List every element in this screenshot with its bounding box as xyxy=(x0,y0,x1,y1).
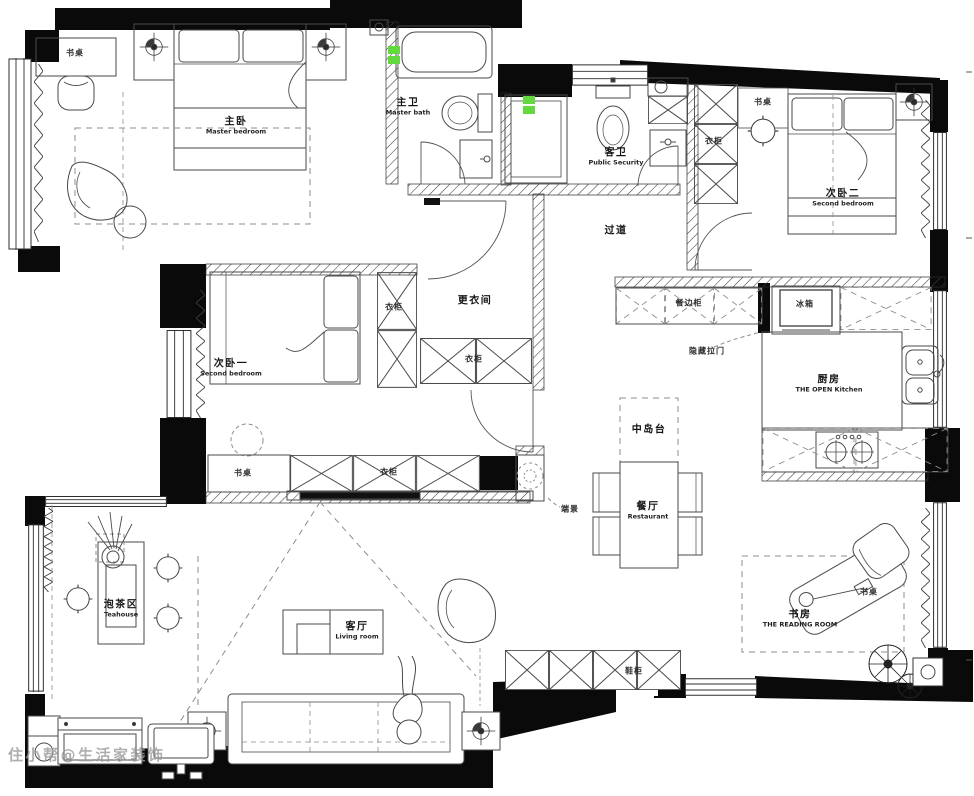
tea-table xyxy=(98,542,144,644)
plant xyxy=(88,512,132,568)
kitchen-sink xyxy=(902,346,944,404)
walls xyxy=(18,0,973,788)
floor-plan-canvas: 主卧Master bedroom 主卫Master bath 客卫Public … xyxy=(0,0,974,796)
label-dining: 餐厅Restaurant xyxy=(628,502,669,521)
label-desk-bedroom2: 书桌 xyxy=(754,97,772,106)
hidden-door-leader xyxy=(714,332,760,347)
bedroom1-furniture xyxy=(208,272,479,492)
label-island: 中岛台 xyxy=(632,424,667,436)
shoe-cabinet xyxy=(505,650,681,696)
label-fridge: 冰箱 xyxy=(796,299,814,308)
toilet-master xyxy=(442,94,492,132)
fridge xyxy=(772,286,840,334)
label-wardrobe-dressing-bottom: 衣柜 xyxy=(465,354,483,363)
washbasin xyxy=(650,130,686,166)
label-end-view: 端景 xyxy=(561,504,579,513)
dimension-ticks xyxy=(966,72,972,660)
bedroom2-furniture xyxy=(694,84,932,235)
sofa xyxy=(228,694,464,764)
round-side-table xyxy=(114,206,146,238)
tv xyxy=(300,492,420,499)
label-wardrobe-dressing-left: 衣柜 xyxy=(385,302,403,311)
door-dressing xyxy=(428,201,506,279)
label-sideboard: 餐边柜 xyxy=(676,298,703,307)
label-bedroom1: 次卧一Second bedroom xyxy=(200,359,262,378)
door-master-bath xyxy=(421,142,465,184)
door-corridor xyxy=(471,390,533,452)
toilet-guest xyxy=(596,78,630,150)
label-wardrobe-bedroom2: 衣柜 xyxy=(705,136,723,145)
label-bedroom2: 次卧二Second bedroom xyxy=(812,189,874,208)
stool-dashed xyxy=(231,424,263,456)
label-desk-master: 书桌 xyxy=(66,48,84,57)
watermark: 住小帮@生活家装饰 xyxy=(8,744,166,765)
label-shoe-cabinet: 鞋柜 xyxy=(625,666,643,675)
label-tea-area: 泡茶区Teahouse xyxy=(104,600,139,619)
bathtub xyxy=(396,26,492,78)
label-dressing-room: 更衣间 xyxy=(458,295,493,307)
bed-bedroom2 xyxy=(788,94,896,234)
dressing-wardrobes xyxy=(377,273,531,388)
rug-dashed xyxy=(75,128,310,224)
door-bedroom2 xyxy=(695,213,752,270)
master-bedroom-furniture xyxy=(36,24,346,250)
kitchen-fixtures xyxy=(616,286,948,472)
label-wardrobe-bedroom1: 衣柜 xyxy=(380,467,398,476)
label-living-room: 客厅Living room xyxy=(335,622,378,641)
label-hidden-sliding-door: 隐藏拉门 xyxy=(689,346,725,355)
shower-enclosure xyxy=(505,95,567,183)
label-master-bath: 主卫Master bath xyxy=(386,98,430,117)
lower-counter xyxy=(762,428,948,472)
label-study: 书房THE READING ROOM xyxy=(763,610,837,629)
label-desk-bedroom1: 书桌 xyxy=(234,468,252,477)
label-desk-study: 书桌 xyxy=(860,587,878,596)
vanity xyxy=(460,140,492,178)
master-bed xyxy=(174,24,306,170)
label-master-bedroom: 主卧Master bedroom xyxy=(206,117,266,136)
label-guest-bath: 客卫Public Security xyxy=(589,148,644,167)
stove xyxy=(816,432,878,468)
floor-plan-drawing xyxy=(0,0,974,796)
label-kitchen: 厨房THE OPEN Kitchen xyxy=(796,375,863,394)
desk-chair xyxy=(58,76,94,110)
label-corridor: 过道 xyxy=(605,225,628,237)
